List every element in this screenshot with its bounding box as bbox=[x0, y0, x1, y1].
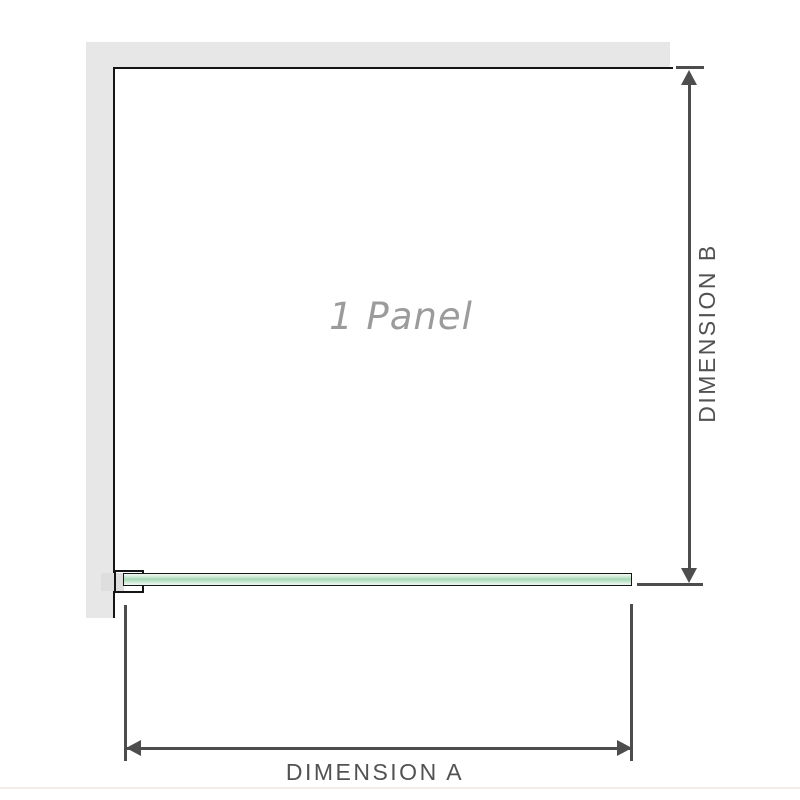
dimension-b-top-tick bbox=[676, 66, 704, 69]
panel-top-edge-line bbox=[113, 67, 673, 69]
panel-count-label: 1 Panel bbox=[251, 294, 551, 338]
footer-divider-line bbox=[0, 787, 800, 789]
panel-dimension-diagram: 1 Panel DIMENSION B DIMENSION A bbox=[0, 0, 800, 800]
wall-left bbox=[86, 42, 113, 618]
arrow-right-icon bbox=[617, 740, 632, 756]
wall-top bbox=[86, 42, 670, 67]
dimension-b-line bbox=[688, 78, 691, 572]
arrow-left-icon bbox=[126, 740, 141, 756]
dimension-b-bottom-tick bbox=[637, 583, 703, 586]
dimension-a-right-extension-line bbox=[630, 604, 633, 761]
arrow-down-icon bbox=[681, 568, 697, 583]
arrow-up-icon bbox=[681, 70, 697, 85]
dimension-a-line bbox=[126, 747, 632, 750]
glass-panel-bar bbox=[123, 573, 632, 586]
dimension-a-left-extension-line bbox=[124, 605, 127, 761]
dimension-a-label: DIMENSION A bbox=[225, 759, 525, 785]
panel-left-edge-line bbox=[113, 67, 115, 618]
dimension-b-label: DIMENSION B bbox=[694, 243, 720, 423]
